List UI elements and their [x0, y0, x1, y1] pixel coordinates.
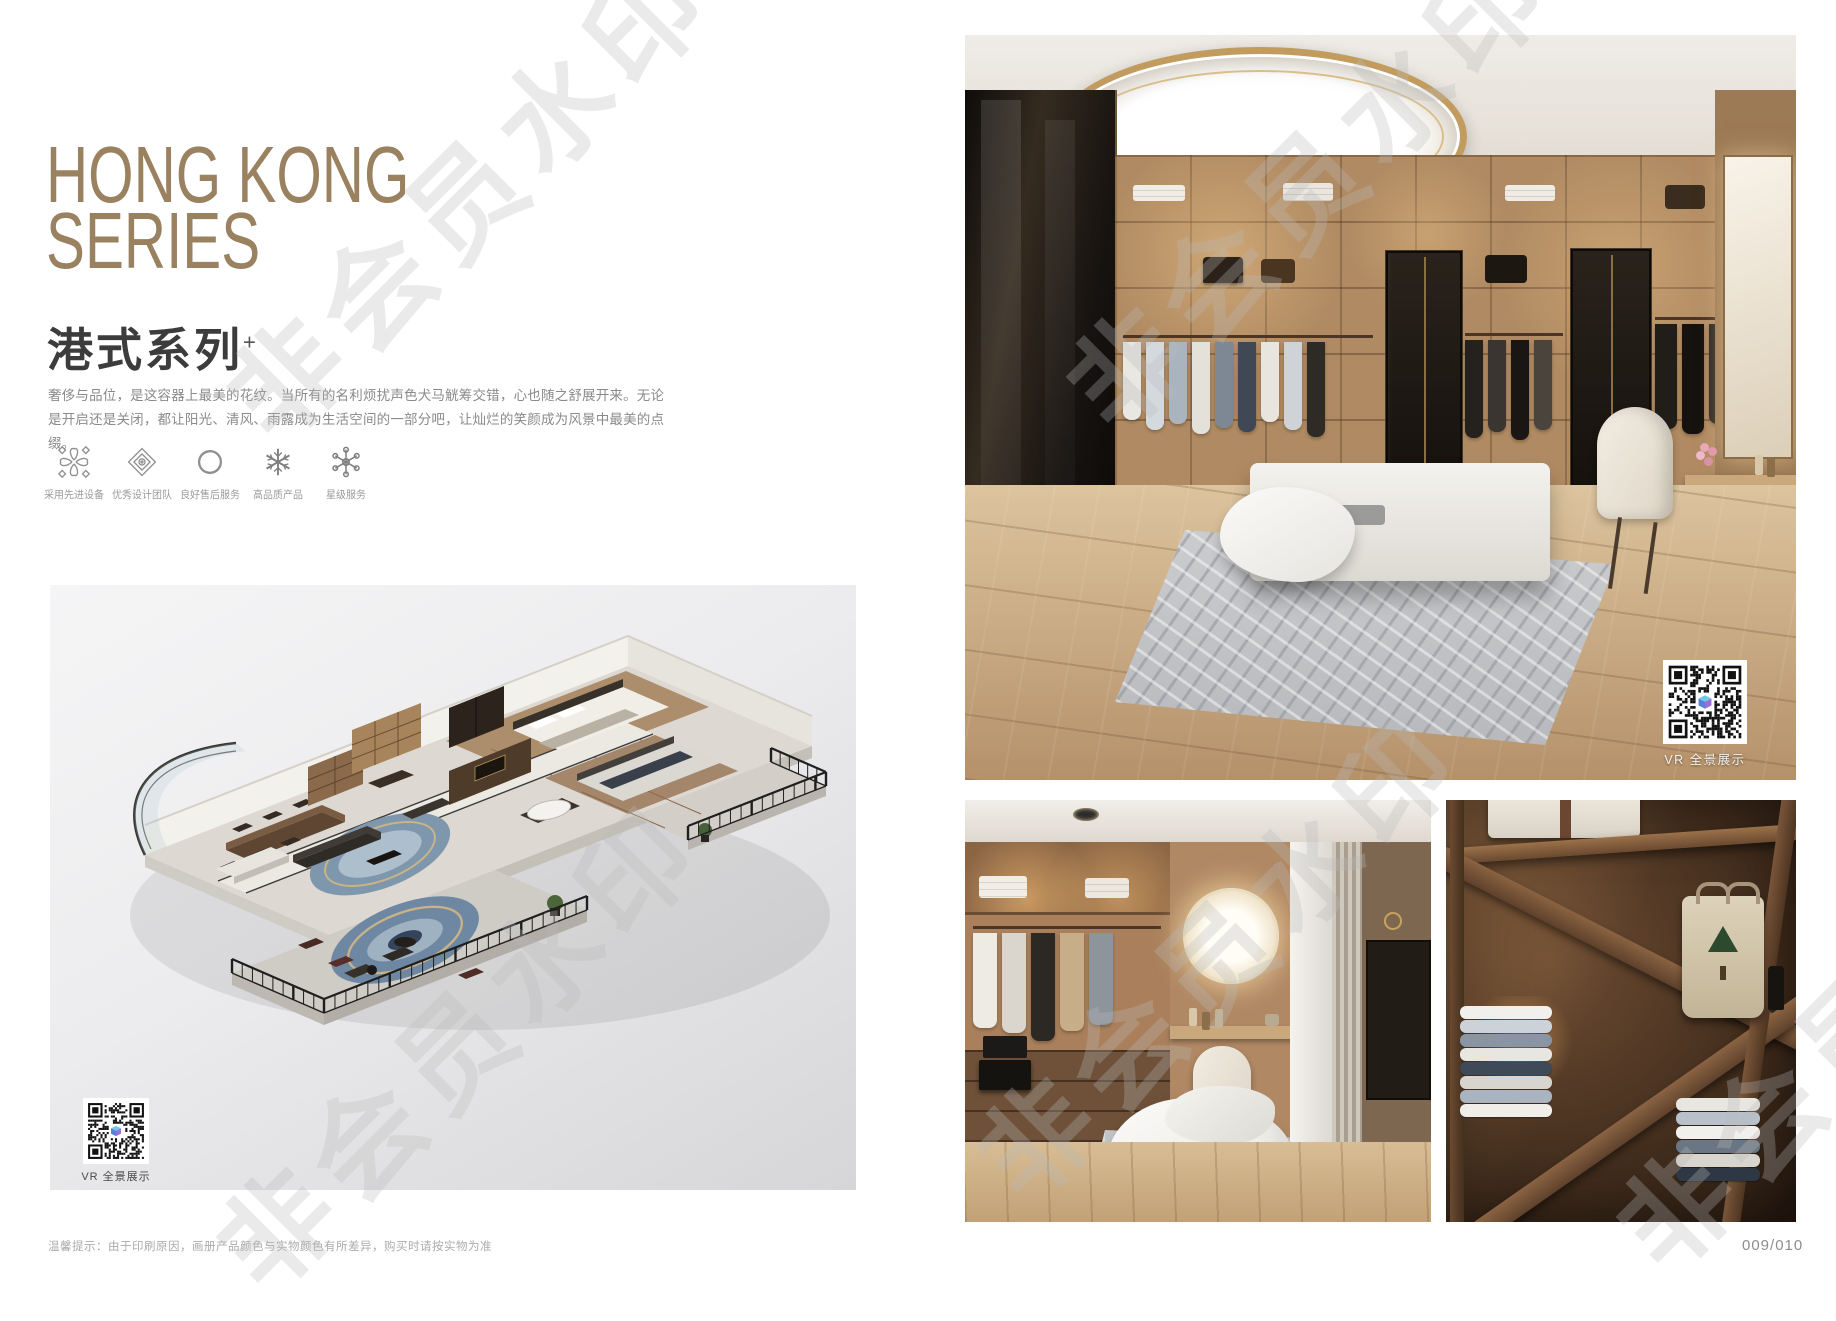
storage-box [983, 1036, 1027, 1058]
garment [1238, 342, 1256, 432]
folded-clothes-stack [1085, 878, 1129, 898]
series-subtitle-plus: + [243, 330, 259, 355]
folded-shirts-stack [1460, 1006, 1552, 1118]
ornament-icon [124, 444, 160, 480]
folded-shirt [1676, 1140, 1760, 1153]
flowers [1700, 443, 1709, 452]
wood-floor [965, 1142, 1431, 1222]
folded-shirt [1460, 1090, 1552, 1103]
page-number: 009/010 [1742, 1237, 1803, 1254]
dark-cabinet [1385, 250, 1463, 490]
folded-shirt [1460, 1076, 1552, 1089]
garment [1192, 342, 1210, 434]
upper-shelf [965, 842, 1170, 915]
draped-garment-fold [1165, 1086, 1275, 1144]
floorplan-image: VR 全景展示 [50, 585, 856, 1190]
vanity-mirror [1723, 155, 1793, 459]
garment [973, 933, 997, 1028]
folded-shirt [1676, 1168, 1760, 1181]
garment [1261, 342, 1279, 422]
folded-shirt [1460, 1034, 1552, 1047]
garment [1307, 342, 1325, 437]
garment [1089, 933, 1113, 1025]
leather-strap [1560, 800, 1571, 838]
black-bottle [1768, 966, 1784, 1010]
folded-shirt [1460, 1020, 1552, 1033]
tote-bag [1682, 896, 1764, 1018]
disclaimer-note: 温馨提示：由于印刷原因，画册产品颜色与实物颜色有所差异，购买时请按实物为准 [48, 1238, 492, 1254]
folded-shirt [1460, 1048, 1552, 1061]
feature-advanced-equipment: 采用先进设备 [40, 444, 108, 502]
folded-shirt [1676, 1154, 1760, 1167]
vanity-desk [1170, 1026, 1302, 1039]
garment [1146, 342, 1164, 430]
feature-label: 高品质产品 [246, 487, 311, 502]
shelf-photo [1446, 800, 1796, 1222]
jewelry-box [1265, 1014, 1279, 1026]
vanity-chair [1597, 407, 1673, 519]
garment [1031, 933, 1055, 1041]
vr-label: VR 全景展示 [1651, 749, 1759, 768]
pinwheel-icon [56, 444, 92, 480]
feature-label: 优秀设计团队 [110, 487, 175, 502]
dark-cabinet [1366, 940, 1431, 1100]
garment [1682, 324, 1704, 434]
feature-after-sales: 良好售后服务 [176, 444, 244, 502]
gold-trim [1424, 257, 1426, 483]
tree-print [1708, 926, 1738, 952]
handbag [1203, 257, 1243, 283]
series-subtitle: 港式系列+ [47, 314, 259, 380]
feature-row: 采用先进设备 优秀设计团队 良好售后服务 [40, 444, 380, 502]
series-title: HONG KONG SERIES [46, 142, 409, 274]
feature-design-team: 优秀设计团队 [108, 444, 176, 502]
folded-shirt [1460, 1104, 1552, 1117]
feature-label: 采用先进设备 [42, 487, 107, 502]
ring-icon [192, 444, 228, 480]
hanging-clothes-rack [1465, 333, 1563, 440]
spotlight [1073, 808, 1099, 821]
wardrobe-left [965, 842, 1170, 1142]
tree-trunk [1720, 966, 1726, 980]
star-service-icon [328, 444, 364, 480]
folded-clothes-stack [979, 876, 1027, 898]
folded-shirt [1676, 1126, 1760, 1139]
folded-clothes-stack [1505, 185, 1555, 201]
feature-star-service: 星级服务 [312, 444, 380, 502]
handbag [1665, 185, 1705, 209]
garment [1002, 933, 1026, 1033]
qr-code [1663, 660, 1747, 744]
snowflake-icon [260, 444, 296, 480]
garment [1060, 933, 1084, 1031]
closet-photo: VR 全景展示 [965, 35, 1796, 780]
folded-shirts-stack [1676, 1098, 1760, 1182]
feature-label: 良好售后服务 [178, 487, 243, 502]
round-mirror [1183, 888, 1279, 984]
feature-label: 星级服务 [314, 487, 379, 502]
garment [1488, 340, 1506, 432]
bag-handle [1726, 882, 1760, 904]
perfume-bottles [1755, 455, 1763, 475]
folded-shirt [1460, 1062, 1552, 1075]
folded-shirt [1460, 1006, 1552, 1019]
folded-clothes-stack [1283, 183, 1333, 201]
vr-label: VR 全景展示 [72, 1168, 160, 1184]
garment [1169, 342, 1187, 424]
garment [1534, 340, 1552, 430]
garment [1655, 324, 1677, 429]
adjacent-room [1332, 842, 1431, 1142]
bag-handle [1696, 882, 1730, 904]
striped-panel [1332, 842, 1362, 1142]
hanging-clothes-rack [1123, 335, 1373, 437]
folded-shirt [1676, 1098, 1760, 1111]
folded-clothes-stack [1133, 185, 1185, 201]
garment [1465, 340, 1483, 438]
series-subtitle-text: 港式系列 [47, 324, 243, 376]
storage-box [979, 1060, 1031, 1090]
garment [1123, 342, 1141, 420]
feature-quality-product: 高品质产品 [244, 444, 312, 502]
storage-case [1488, 800, 1640, 838]
qr-code [83, 1098, 149, 1164]
gold-lamp [1384, 912, 1402, 930]
garment [1284, 342, 1302, 430]
garment [1215, 342, 1233, 428]
dressing-photo [965, 800, 1431, 1222]
garment [1511, 340, 1529, 440]
perfume-bottles [1189, 1008, 1197, 1026]
floorplan-render [50, 585, 856, 1190]
hanging-clothes-rack [973, 926, 1161, 1041]
handbag [1261, 259, 1295, 283]
folded-shirt [1676, 1112, 1760, 1125]
ceiling [965, 800, 1431, 842]
handbag [1485, 255, 1527, 283]
white-pillar [1290, 842, 1332, 1142]
